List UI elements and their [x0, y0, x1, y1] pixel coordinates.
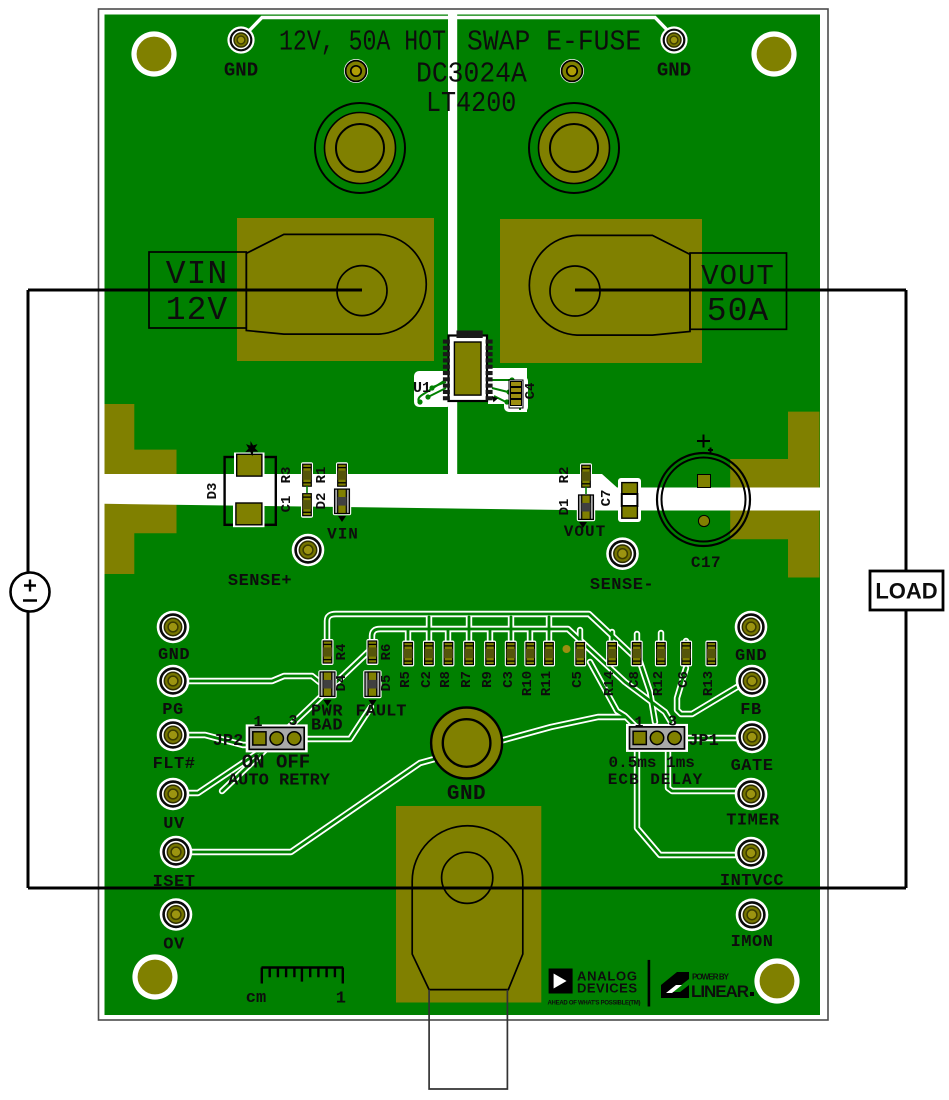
svg-text:SENSE+: SENSE+ [228, 572, 292, 591]
svg-text:D3: D3 [205, 483, 221, 500]
svg-text:50A: 50A [707, 293, 769, 330]
svg-text:D1: D1 [557, 499, 573, 516]
svg-text:SWAP E-FUSE: SWAP E-FUSE [467, 26, 641, 58]
svg-text:TIMER: TIMER [726, 812, 780, 831]
svg-text:FB: FB [740, 701, 761, 720]
svg-text:R14: R14 [602, 671, 618, 696]
svg-text:C17: C17 [691, 554, 721, 572]
svg-text:0.5ms 1ms: 0.5ms 1ms [608, 754, 694, 772]
svg-text:R2: R2 [557, 467, 573, 484]
svg-text:3: 3 [288, 713, 297, 730]
svg-text:VOUT: VOUT [564, 523, 606, 541]
svg-text:C8: C8 [627, 671, 643, 688]
svg-text:1: 1 [634, 715, 643, 732]
svg-text:R11: R11 [539, 671, 555, 696]
svg-text:JP1: JP1 [688, 732, 719, 751]
svg-text:R12: R12 [651, 671, 667, 696]
svg-text:LINEAR: LINEAR [691, 982, 749, 1001]
svg-text:GND: GND [657, 60, 691, 82]
svg-text:D2: D2 [314, 493, 330, 510]
svg-text:VIN: VIN [166, 256, 228, 293]
svg-text:R6: R6 [379, 644, 395, 661]
svg-text:C6: C6 [676, 671, 692, 688]
svg-text:VIN: VIN [327, 526, 359, 544]
svg-text:PG: PG [162, 701, 183, 720]
svg-text:C7: C7 [599, 490, 615, 507]
svg-text:U1: U1 [413, 380, 431, 397]
svg-text:SENSE-: SENSE- [590, 576, 654, 595]
svg-text:1: 1 [336, 990, 346, 1009]
svg-text:VOUT: VOUT [701, 260, 775, 293]
svg-text:C1: C1 [279, 496, 295, 513]
svg-text:GND: GND [224, 60, 258, 82]
svg-text:12V, 50A HOT: 12V, 50A HOT [279, 25, 446, 58]
svg-text:R5: R5 [398, 671, 414, 688]
svg-text:C4: C4 [523, 383, 539, 400]
svg-text:ECB DELAY: ECB DELAY [608, 771, 703, 789]
svg-text:ON OFF: ON OFF [242, 752, 310, 774]
svg-text:JP2: JP2 [213, 732, 244, 751]
svg-text:R3: R3 [279, 467, 295, 484]
svg-text:D4: D4 [334, 675, 350, 692]
svg-text:FLT#: FLT# [153, 755, 196, 774]
svg-text:IMON: IMON [731, 933, 774, 952]
svg-text:R13: R13 [701, 671, 717, 696]
svg-text:3: 3 [668, 713, 677, 730]
svg-text:OV: OV [163, 936, 185, 955]
svg-text:1: 1 [253, 714, 262, 731]
svg-text:UV: UV [163, 815, 185, 834]
svg-text:R7: R7 [459, 671, 475, 688]
svg-text:R4: R4 [334, 644, 350, 661]
svg-text:C2: C2 [419, 671, 435, 688]
svg-text:LOAD: LOAD [875, 579, 937, 604]
svg-text:R9: R9 [480, 671, 496, 688]
svg-text:R8: R8 [438, 671, 454, 688]
svg-text:GND: GND [158, 646, 190, 665]
svg-text:D5: D5 [379, 675, 395, 692]
svg-text:cm: cm [246, 989, 266, 1008]
svg-text:LT4200: LT4200 [426, 87, 516, 120]
svg-text:AUTO RETRY: AUTO RETRY [228, 772, 331, 791]
svg-text:12V: 12V [166, 292, 228, 329]
svg-text:BAD: BAD [311, 717, 343, 736]
svg-text:FAULT: FAULT [355, 703, 406, 722]
svg-text:R1: R1 [314, 467, 330, 484]
svg-text:GND: GND [735, 647, 767, 666]
svg-text:DEVICES: DEVICES [577, 981, 637, 996]
svg-text:C5: C5 [570, 671, 586, 688]
svg-text:R10: R10 [520, 671, 536, 696]
svg-text:AHEAD OF WHAT'S POSSIBLE(TM): AHEAD OF WHAT'S POSSIBLE(TM) [548, 1001, 641, 1007]
svg-text:DC3024A: DC3024A [416, 58, 527, 90]
svg-text:C3: C3 [501, 671, 517, 688]
svg-text:POWER BY: POWER BY [692, 973, 730, 982]
svg-text:GATE: GATE [731, 757, 774, 776]
svg-text:GND: GND [447, 783, 486, 806]
